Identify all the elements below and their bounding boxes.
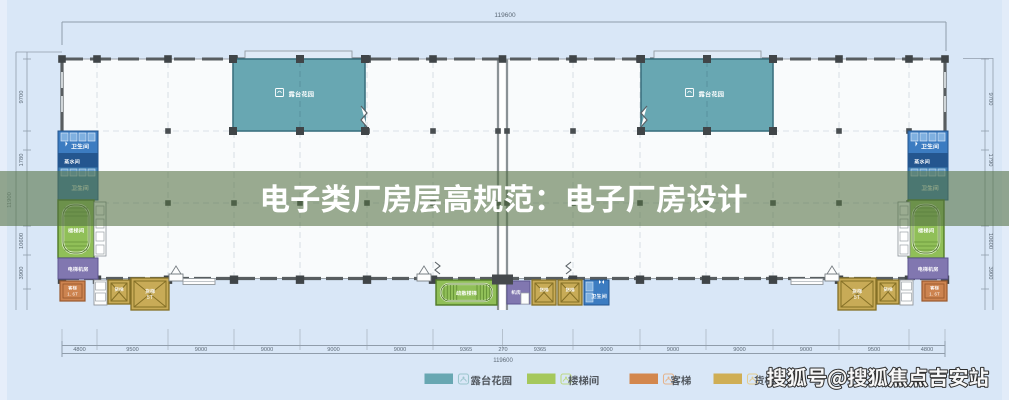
- svg-text:9000: 9000: [327, 347, 339, 353]
- svg-text:4800: 4800: [921, 347, 933, 353]
- svg-text:1790: 1790: [987, 154, 993, 167]
- svg-text:T: T: [857, 295, 860, 301]
- svg-text:1780: 1780: [19, 154, 25, 167]
- svg-text:9000: 9000: [733, 347, 745, 353]
- svg-text:9500: 9500: [868, 347, 880, 353]
- svg-text:9365: 9365: [534, 347, 546, 353]
- svg-text:.: .: [70, 292, 71, 297]
- svg-text:10600: 10600: [987, 233, 993, 249]
- svg-text:9365: 9365: [460, 347, 472, 353]
- svg-text:3900: 3900: [987, 267, 993, 280]
- svg-text:T: T: [937, 292, 940, 297]
- svg-text:9700: 9700: [987, 93, 993, 106]
- svg-text:10600: 10600: [19, 233, 25, 249]
- svg-text:9000: 9000: [195, 347, 207, 353]
- svg-text:9000: 9000: [394, 347, 406, 353]
- svg-text:9700: 9700: [19, 91, 25, 104]
- svg-text:9000: 9000: [800, 347, 812, 353]
- svg-text:3900: 3900: [19, 267, 25, 280]
- svg-text:T: T: [75, 292, 78, 297]
- svg-text:9500: 9500: [126, 347, 138, 353]
- svg-text:9000: 9000: [667, 347, 679, 353]
- svg-text:4800: 4800: [73, 347, 85, 353]
- svg-text:270: 270: [498, 347, 507, 353]
- svg-text:9000: 9000: [600, 347, 612, 353]
- svg-text:T: T: [150, 295, 153, 301]
- svg-text:.: .: [932, 292, 933, 297]
- svg-text:119600: 119600: [493, 358, 513, 364]
- svg-text:9000: 9000: [261, 347, 273, 353]
- svg-text:119600: 119600: [494, 12, 516, 19]
